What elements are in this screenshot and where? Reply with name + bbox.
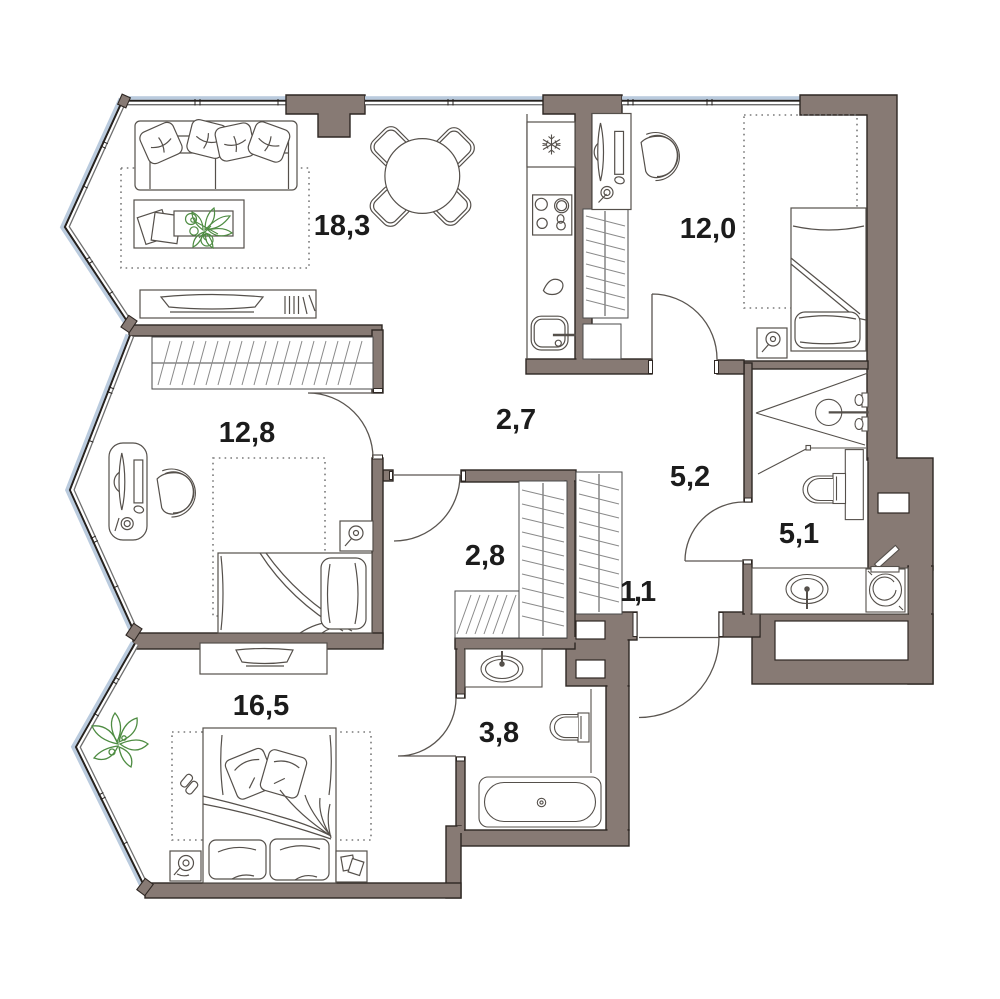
svg-text:5,2: 5,2 (670, 461, 710, 493)
svg-text:2,7: 2,7 (496, 404, 536, 436)
svg-text:1,1: 1,1 (620, 576, 656, 608)
svg-text:2,8: 2,8 (465, 540, 505, 572)
svg-text:3,8: 3,8 (479, 717, 519, 749)
svg-text:18,3: 18,3 (314, 210, 370, 242)
svg-text:16,5: 16,5 (233, 690, 289, 722)
svg-text:5,1: 5,1 (779, 518, 819, 550)
svg-text:12,8: 12,8 (219, 417, 275, 449)
svg-text:12,0: 12,0 (680, 213, 736, 245)
